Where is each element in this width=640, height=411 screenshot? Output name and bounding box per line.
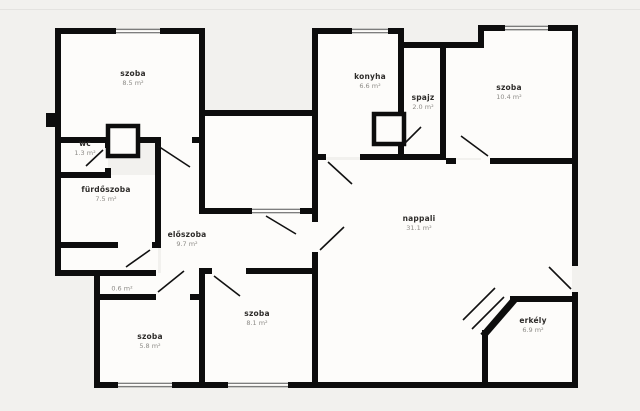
floorplan-canvas: szoba 8.5 m² wc 1.3 m² fürdőszoba 7.5 m²… (0, 0, 640, 411)
floorplan-drawing (0, 0, 640, 411)
